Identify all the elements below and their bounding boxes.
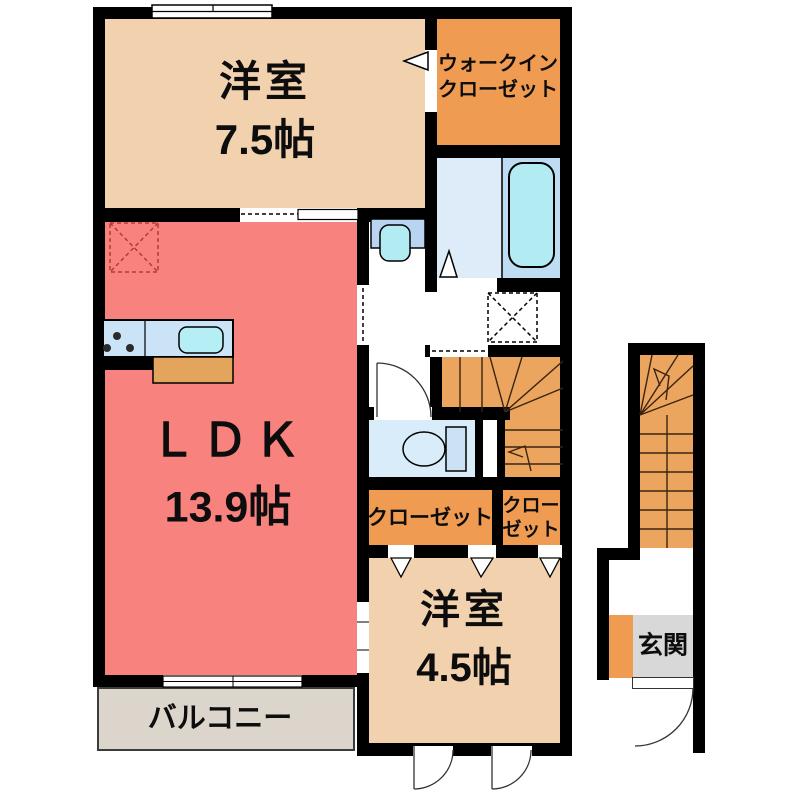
entrance-door-arc-icon — [635, 688, 693, 746]
hall-closet-label: クローゼット — [367, 508, 493, 529]
wall — [492, 490, 503, 545]
sliding-door-opening-ldk-bedroom2 — [357, 602, 369, 673]
entrance-step — [633, 678, 693, 688]
wall — [597, 548, 609, 680]
floor-plan: 洋室 7.5帖 ウォークイン クローゼット ＬＤＫ 13.9帖 クローゼット ク… — [0, 0, 800, 800]
door-opening-bedroom2-south — [491, 746, 532, 756]
bedroom-second-label: 洋室 — [420, 590, 508, 630]
wall-kitchen-stub — [103, 357, 155, 370]
sliding-door-opening-bedroom1-ldk — [240, 208, 357, 222]
wall — [475, 420, 483, 477]
bedroom-second-area: 4.5帖 — [416, 648, 512, 688]
wall — [93, 7, 572, 19]
wall — [437, 145, 560, 158]
closet-door-opening — [388, 545, 414, 558]
door-opening-toilet — [374, 407, 432, 420]
wall — [628, 343, 640, 560]
stairs-internal-lower — [505, 412, 563, 477]
room-bedroom-main — [105, 19, 425, 208]
bathroom-tub-area — [502, 158, 560, 278]
wall — [357, 743, 572, 756]
wall — [357, 477, 572, 490]
room-toilet — [369, 420, 475, 477]
balcony-label: バルコニー — [148, 705, 292, 734]
ceiling-hatch-marker — [488, 293, 537, 342]
small-closet-label: クロー — [502, 497, 559, 516]
walk-in-closet-label: クローゼット — [438, 80, 558, 100]
wall — [497, 412, 505, 477]
door-opening-bedroom2-south — [413, 746, 453, 756]
window-opening-balcony — [163, 675, 302, 687]
bathroom-washing-area — [437, 158, 502, 278]
closet-door-opening — [468, 545, 496, 558]
wall — [93, 7, 105, 687]
entrance-label: 玄関 — [638, 634, 688, 659]
bedroom-main-label: 洋室 — [219, 61, 311, 103]
ldk-label: ＬＤＫ — [150, 417, 306, 463]
closet-door-opening — [538, 545, 562, 558]
stairs-internal-upper — [440, 357, 563, 412]
ldk-area: 13.9帖 — [165, 487, 292, 530]
bedroom-main-area: 7.5帖 — [215, 119, 315, 161]
sliding-door-opening-ldk-hall — [357, 285, 369, 345]
small-closet-label: ゼット — [502, 521, 559, 540]
opening-hall-stairs — [430, 345, 488, 357]
door-opening-bathroom — [437, 278, 497, 292]
stairs-external — [640, 355, 693, 548]
wall — [560, 7, 572, 756]
walk-in-closet-label: ウォークイン — [438, 54, 558, 74]
wall — [693, 343, 705, 753]
door-opening-wic — [425, 50, 437, 112]
washbasin-icon — [371, 219, 425, 261]
